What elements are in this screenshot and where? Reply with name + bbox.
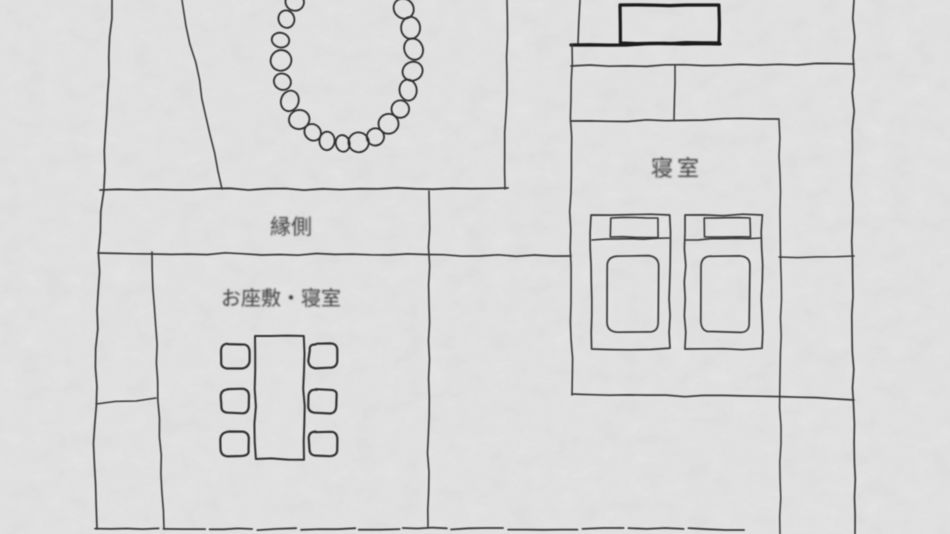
svg-text:お座敷・寝室: お座敷・寝室 bbox=[221, 287, 341, 310]
svg-text:寝室: 寝室 bbox=[651, 156, 703, 181]
svg-text:縁側: 縁側 bbox=[270, 216, 312, 239]
